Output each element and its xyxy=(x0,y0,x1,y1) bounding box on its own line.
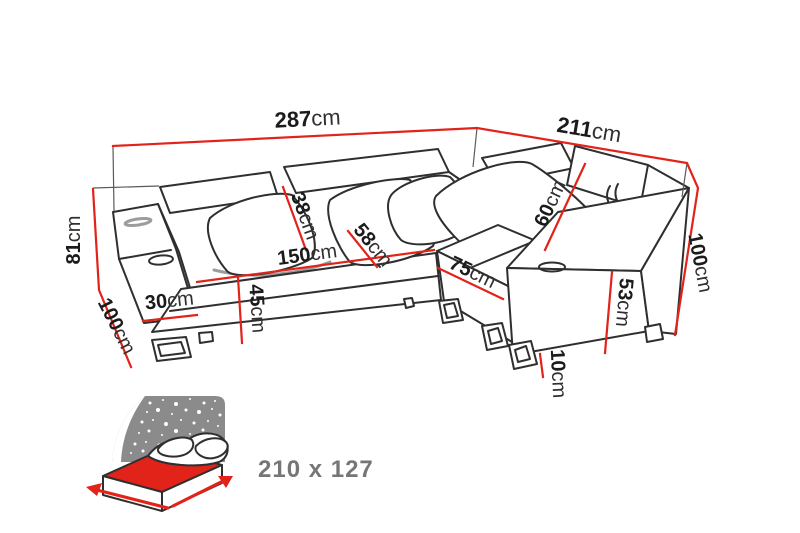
sleeping-area-icon: 210 x 127 xyxy=(86,396,374,511)
dim-label-100-right: 100cm xyxy=(683,231,716,294)
dim-label-81: 81cm xyxy=(63,216,85,265)
diagram-canvas: 287cm 211cm 81cm 100cm 38cm 58cm 150cm 3… xyxy=(0,0,800,533)
sofa-sketch xyxy=(113,143,689,369)
dim-label-287: 287cm xyxy=(274,104,341,132)
dim-label-10: 10cm xyxy=(546,349,571,399)
sleeping-area-size-label: 210 x 127 xyxy=(258,456,374,483)
dim-label-100-left: 100cm xyxy=(93,295,140,358)
dim-label-53: 53cm xyxy=(611,277,637,328)
dim-label-45: 45cm xyxy=(244,283,269,333)
dim-line-10 xyxy=(540,354,543,377)
furniture-dimension-diagram: 287cm 211cm 81cm 100cm 38cm 58cm 150cm 3… xyxy=(0,0,800,533)
